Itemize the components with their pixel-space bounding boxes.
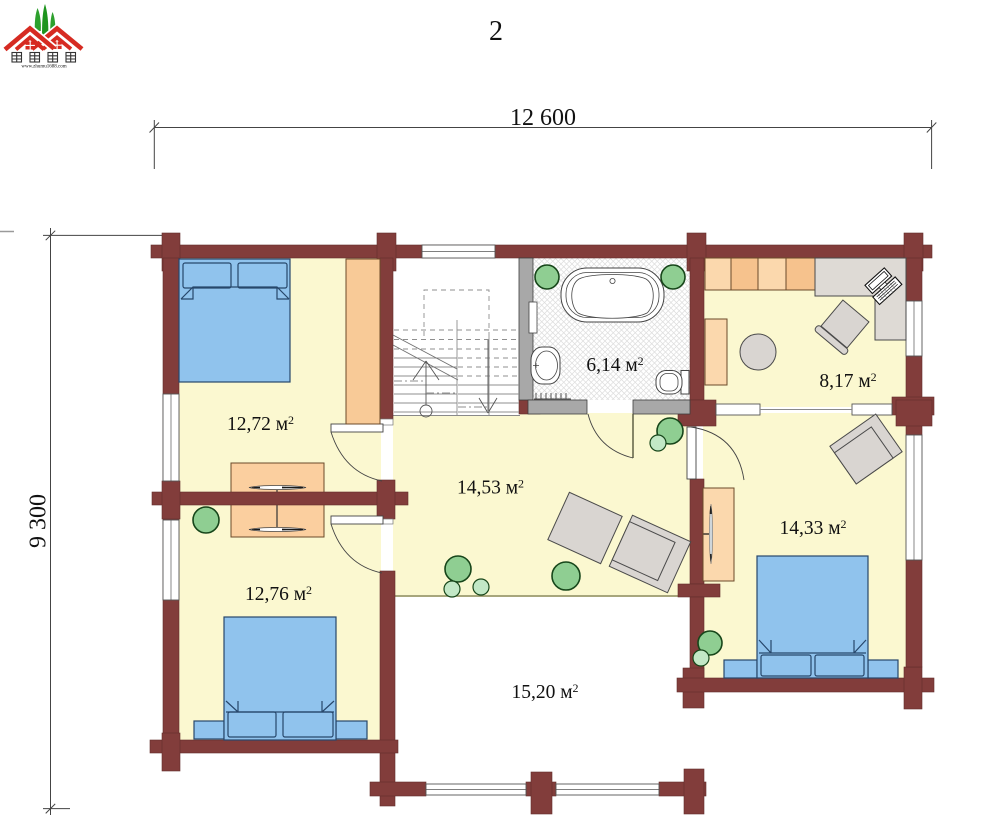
svg-text:2: 2: [489, 16, 503, 47]
svg-text:12,76 м2: 12,76 м2: [245, 583, 312, 605]
svg-text:12 600: 12 600: [510, 105, 576, 131]
svg-text:9 300: 9 300: [26, 494, 52, 548]
svg-text:12,72 м2: 12,72 м2: [227, 413, 294, 435]
svg-text:14,33 м2: 14,33 м2: [779, 517, 846, 539]
svg-text:6,14 м2: 6,14 м2: [586, 354, 643, 376]
svg-text:15,20 м2: 15,20 м2: [511, 681, 578, 703]
svg-text:8,17 м2: 8,17 м2: [819, 370, 876, 392]
svg-text:www.zhumu1688.com: www.zhumu1688.com: [21, 65, 66, 70]
svg-text:14,53 м2: 14,53 м2: [457, 477, 524, 499]
